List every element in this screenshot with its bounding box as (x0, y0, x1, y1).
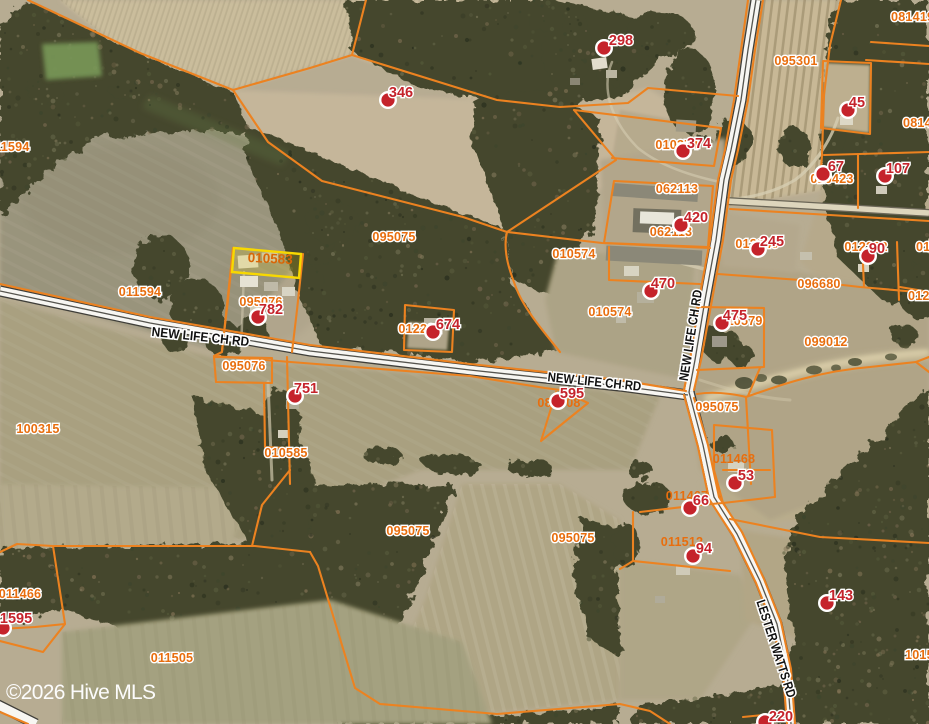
svg-text:94: 94 (696, 541, 712, 557)
svg-text:095076: 095076 (222, 359, 265, 373)
svg-text:099012: 099012 (804, 335, 847, 349)
svg-text:010585: 010585 (264, 446, 307, 460)
svg-text:374: 374 (687, 136, 711, 152)
svg-text:081419: 081419 (891, 10, 929, 24)
svg-text:010574: 010574 (588, 305, 631, 319)
svg-text:011505: 011505 (151, 651, 194, 665)
svg-text:062113: 062113 (656, 182, 699, 196)
svg-text:475: 475 (723, 308, 747, 324)
svg-text:245: 245 (760, 234, 784, 250)
svg-text:90: 90 (869, 241, 885, 257)
svg-text:674: 674 (436, 317, 460, 333)
svg-text:751: 751 (294, 381, 318, 397)
svg-text:095075: 095075 (372, 230, 415, 244)
svg-text:011466: 011466 (0, 587, 41, 601)
svg-text:220: 220 (769, 709, 793, 724)
svg-text:01229: 01229 (908, 289, 929, 303)
svg-text:096680: 096680 (797, 277, 840, 291)
svg-text:095075: 095075 (695, 400, 738, 414)
svg-text:©2026 Hive MLS: ©2026 Hive MLS (6, 681, 156, 704)
svg-text:010583: 010583 (247, 250, 293, 267)
svg-text:420: 420 (684, 210, 708, 226)
svg-text:081421: 081421 (903, 116, 929, 130)
svg-text:346: 346 (389, 85, 413, 101)
svg-text:1595: 1595 (0, 611, 32, 627)
svg-text:595: 595 (560, 386, 584, 402)
svg-text:66: 66 (693, 493, 709, 509)
svg-text:67: 67 (828, 159, 844, 175)
svg-text:470: 470 (651, 276, 675, 292)
svg-text:298: 298 (609, 33, 633, 49)
svg-text:011594: 011594 (0, 140, 30, 154)
svg-text:101512: 101512 (905, 648, 929, 662)
svg-text:011468: 011468 (713, 452, 756, 466)
svg-text:0123: 0123 (916, 240, 929, 254)
svg-text:107: 107 (886, 161, 910, 177)
svg-text:010574: 010574 (552, 247, 595, 261)
svg-text:095075: 095075 (386, 524, 429, 538)
svg-text:011594: 011594 (119, 285, 162, 299)
svg-text:100315: 100315 (16, 422, 59, 436)
svg-text:45: 45 (849, 95, 865, 111)
svg-text:095301: 095301 (774, 54, 817, 68)
svg-text:782: 782 (259, 302, 283, 318)
svg-text:143: 143 (829, 588, 853, 604)
svg-text:53: 53 (738, 468, 754, 484)
svg-text:095075: 095075 (551, 531, 594, 545)
